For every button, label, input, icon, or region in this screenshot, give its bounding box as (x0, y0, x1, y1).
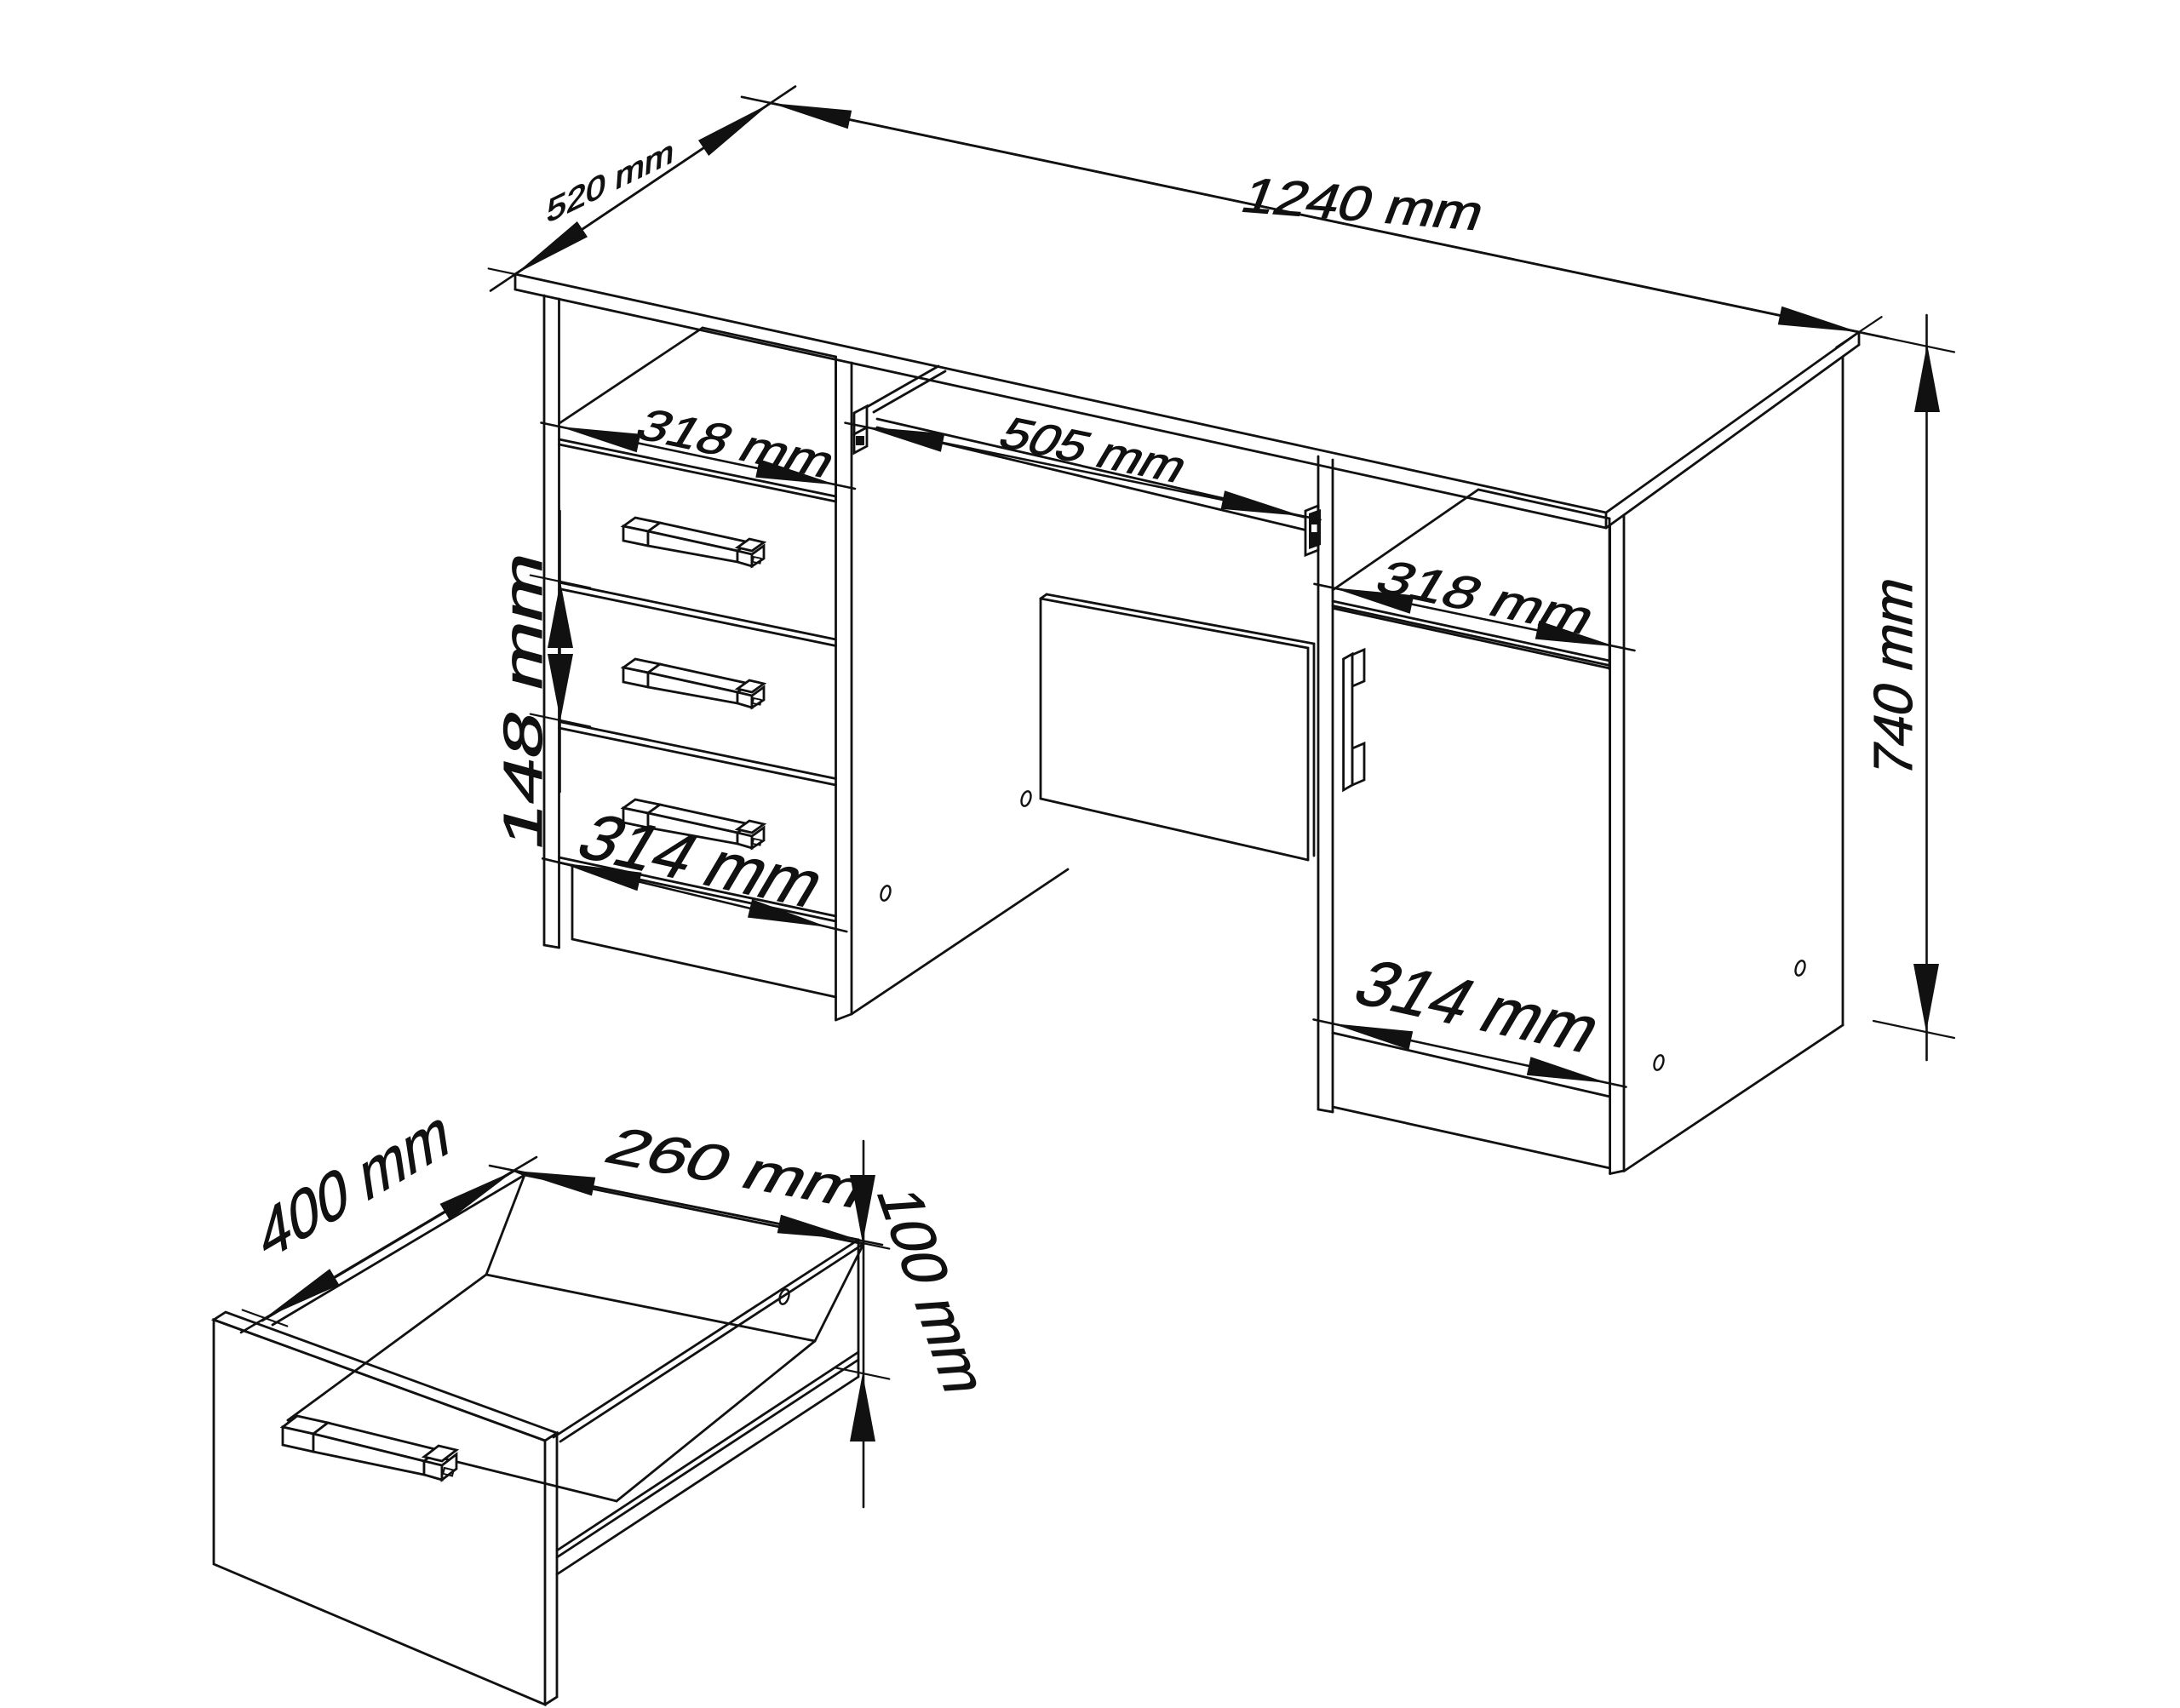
svg-text:148 mm: 148 mm (493, 544, 554, 856)
svg-text:318 mm: 318 mm (1367, 551, 1607, 644)
svg-text:400 mm: 400 mm (255, 1091, 453, 1275)
svg-text:260 mm: 260 mm (596, 1117, 880, 1218)
svg-text:520 mm: 520 mm (546, 132, 675, 232)
svg-text:100 mm: 100 mm (863, 1187, 1001, 1396)
svg-text:1240 mm: 1240 mm (1235, 168, 1493, 241)
svg-text:314 mm: 314 mm (1342, 947, 1615, 1065)
svg-text:318 mm: 318 mm (627, 400, 846, 486)
svg-text:740 mm: 740 mm (1862, 570, 1924, 782)
